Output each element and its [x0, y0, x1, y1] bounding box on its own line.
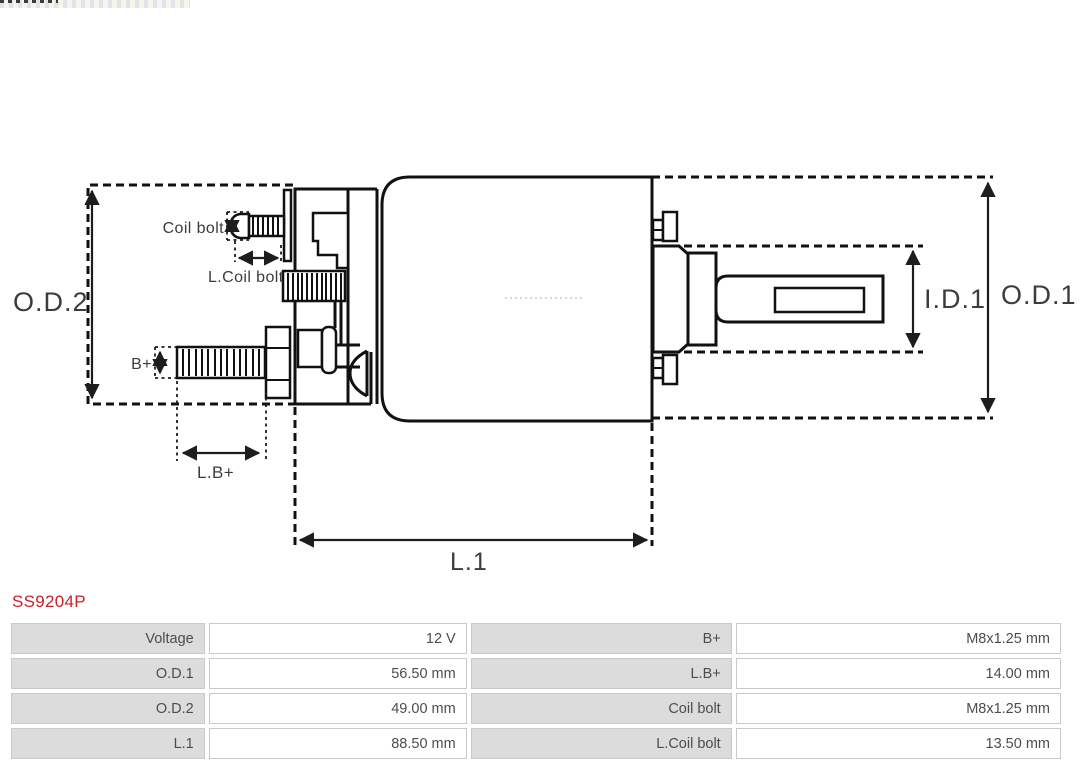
terminal-block — [283, 189, 377, 404]
spec-row: Voltage 12 V B+ M8x1.25 mm — [11, 623, 1061, 654]
spec-value-bplus: M8x1.25 mm — [736, 623, 1061, 654]
dim-label-l-bplus: L.B+ — [197, 463, 234, 482]
spec-value-lcoilbolt: 13.50 mm — [736, 728, 1061, 759]
dim-label-bplus: B+ — [131, 356, 152, 373]
spec-label-coilbolt: Coil bolt — [471, 693, 732, 724]
spec-row: O.D.1 56.50 mm L.B+ 14.00 mm — [11, 658, 1061, 689]
plunger-collar — [688, 253, 716, 345]
l1-dashed-guides — [295, 407, 652, 546]
dim-bplus: B+ — [131, 347, 176, 378]
spec-label-l1: L.1 — [11, 728, 205, 759]
spec-value-lbplus: 14.00 mm — [736, 658, 1061, 689]
spec-label-voltage: Voltage — [11, 623, 205, 654]
spec-table: Voltage 12 V B+ M8x1.25 mm O.D.1 56.50 m… — [7, 619, 1065, 763]
bplus-washer-plate — [298, 330, 322, 367]
spec-value-voltage: 12 V — [209, 623, 467, 654]
dim-label-id1: I.D.1 — [924, 284, 986, 314]
dim-id1: I.D.1 — [913, 251, 986, 347]
bplus-washer — [322, 327, 336, 373]
spec-value-od2: 49.00 mm — [209, 693, 467, 724]
bplus-nut — [266, 327, 290, 398]
spec-label-lcoilbolt: L.Coil bolt — [471, 728, 732, 759]
spec-label-od2: O.D.2 — [11, 693, 205, 724]
dim-label-l1: L.1 — [450, 548, 488, 576]
coil-bolt-head — [231, 214, 249, 238]
solenoid-technical-drawing: O.D.2 O.D.1 I.D.1 L.1 Coil bolt L.Coil b… — [0, 0, 1080, 592]
dim-label-coil-bolt: Coil bolt — [163, 220, 225, 237]
dim-l-bplus: L.B+ — [177, 381, 266, 482]
spec-value-l1: 88.50 mm — [209, 728, 467, 759]
dim-label-od2: O.D.2 — [13, 287, 89, 317]
dim-od2: O.D.2 — [13, 191, 92, 398]
dim-od1: O.D.1 — [988, 183, 1077, 412]
spec-label-bplus: B+ — [471, 623, 732, 654]
cropped-logo-sliver — [0, 0, 190, 8]
plunger-assembly — [653, 246, 883, 352]
coil-bolt — [231, 214, 284, 238]
flange-notch — [350, 351, 367, 396]
dim-label-od1: O.D.1 — [1001, 280, 1077, 310]
solenoid-body — [382, 177, 652, 421]
spec-value-od1: 56.50 mm — [209, 658, 467, 689]
plunger-bevel — [653, 246, 688, 352]
spec-label-od1: O.D.1 — [11, 658, 205, 689]
shaft-slot — [775, 288, 864, 312]
dim-label-l-coil-bolt: L.Coil bolt — [208, 269, 284, 286]
part-number: SS9204P — [12, 592, 1080, 612]
spec-row: L.1 88.50 mm L.Coil bolt 13.50 mm — [11, 728, 1061, 759]
spec-value-coilbolt: M8x1.25 mm — [736, 693, 1061, 724]
spec-row: O.D.2 49.00 mm Coil bolt M8x1.25 mm — [11, 693, 1061, 724]
spec-label-lbplus: L.B+ — [471, 658, 732, 689]
dim-l1: L.1 — [300, 540, 647, 576]
dim-l-coil-bolt: L.Coil bolt — [208, 241, 284, 286]
bplus-bolt — [177, 327, 290, 398]
